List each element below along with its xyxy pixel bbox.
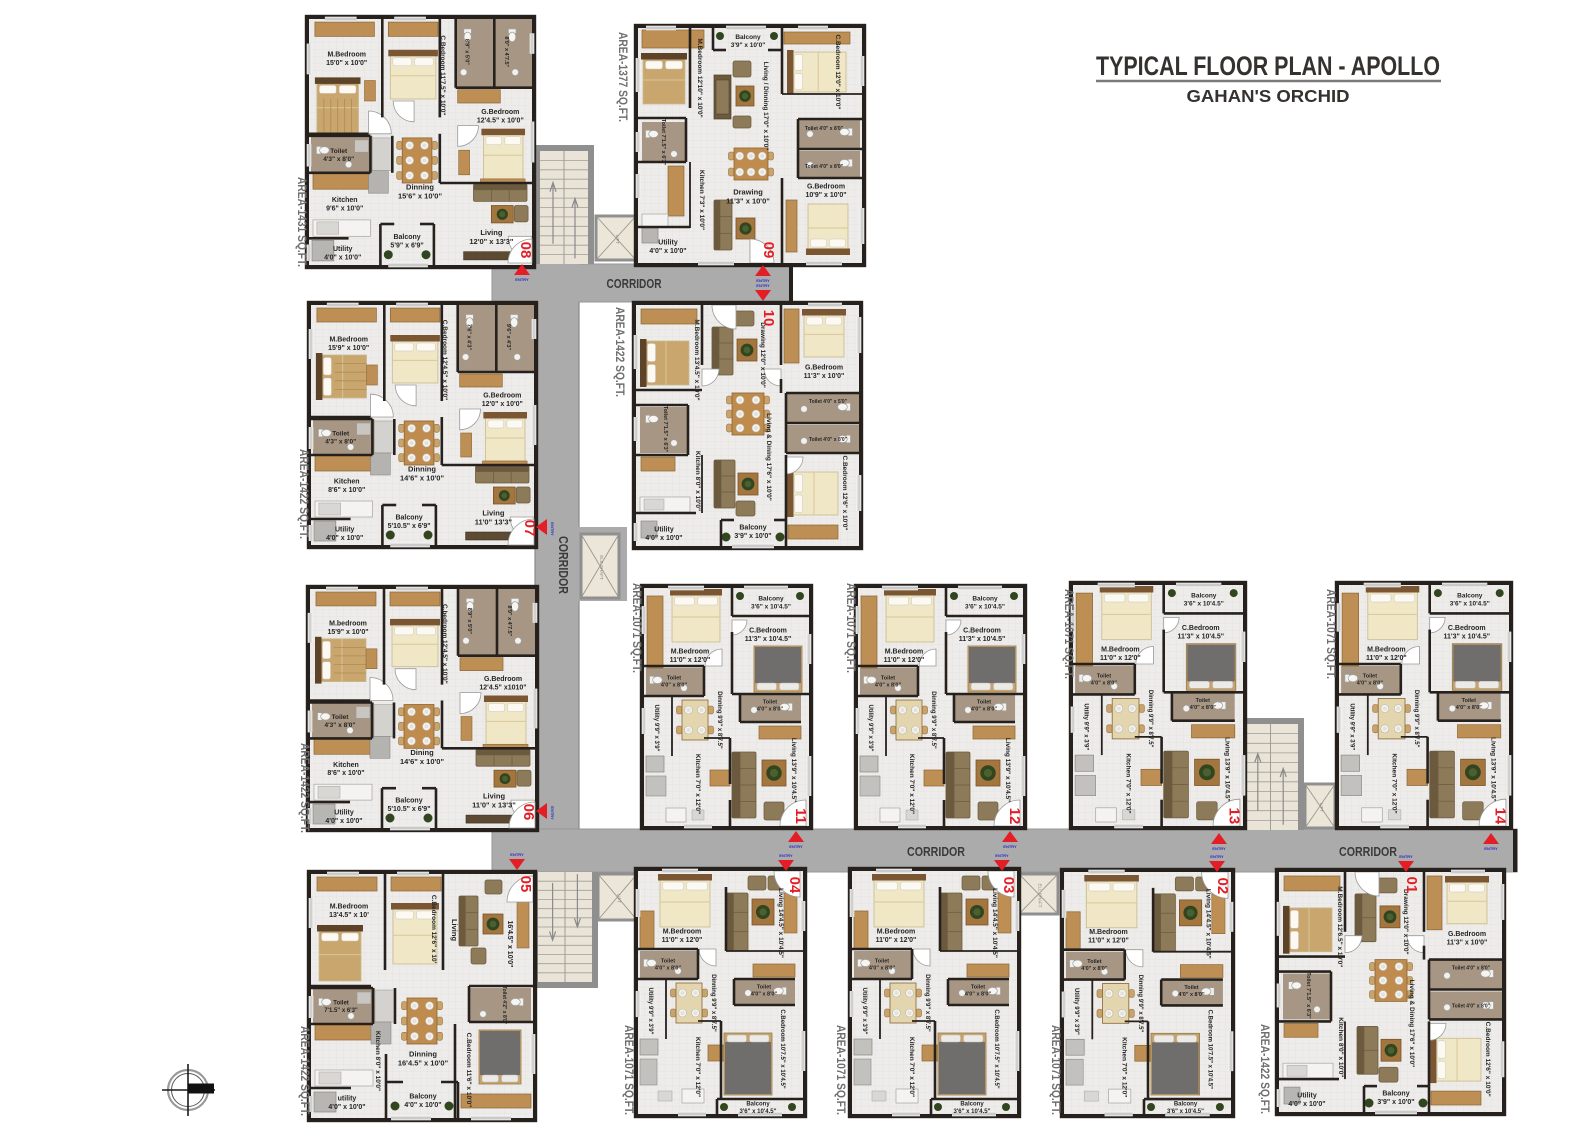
svg-text:4'0" x 10'0": 4'0" x 10'0" [326, 535, 363, 542]
svg-text:Toilet 7'1.5" x 6'3": Toilet 7'1.5" x 6'3" [662, 406, 668, 453]
svg-text:Toilet: Toilet [330, 148, 348, 155]
svg-text:Kitchen 8'0" x 10'0": Kitchen 8'0" x 10'0" [1337, 1017, 1344, 1077]
svg-text:Living 13'9" x 10'4.5": Living 13'9" x 10'4.5" [1490, 737, 1497, 802]
svg-text:Drawing: Drawing [733, 188, 763, 197]
svg-text:3'6" x 10'4.5": 3'6" x 10'4.5" [954, 1109, 991, 1115]
svg-text:4'0" x 10'0": 4'0" x 10'0" [328, 1104, 365, 1111]
svg-text:GAHAN'S ORCHID: GAHAN'S ORCHID [1187, 86, 1350, 106]
svg-text:AREA-1422 SQ.FT.: AREA-1422 SQ.FT. [613, 307, 625, 397]
svg-text:Kitchen 7'0" x 12'0": Kitchen 7'0" x 12'0" [908, 1037, 915, 1097]
svg-text:4'0" x 8'0": 4'0" x 8'0" [1357, 681, 1384, 687]
svg-text:12: 12 [1006, 808, 1023, 825]
svg-text:5'10.5" x 6'9": 5'10.5" x 6'9" [388, 523, 431, 530]
svg-text:AREA-1071 SQ.FT.: AREA-1071 SQ.FT. [1062, 589, 1074, 679]
svg-text:11'0" x 12'0": 11'0" x 12'0" [876, 937, 917, 944]
svg-text:Balcony: Balcony [746, 1102, 770, 1108]
svg-text:05: 05 [517, 876, 534, 893]
svg-text:3'9" x 10'0": 3'9" x 10'0" [1377, 1099, 1414, 1106]
svg-text:Balcony: Balcony [1457, 593, 1483, 600]
svg-text:4'3" x 8'0": 4'3" x 8'0" [325, 722, 356, 729]
svg-text:12'4.5" x 10'0": 12'4.5" x 10'0" [477, 117, 524, 124]
svg-text:06: 06 [520, 804, 537, 821]
svg-text:Dinning 9'9" x 8'7.5": Dinning 9'9" x 8'7.5" [716, 691, 722, 749]
svg-text:Utility: Utility [1297, 1093, 1317, 1100]
svg-text:ENTRY: ENTRY [1210, 854, 1224, 859]
svg-text:AREA-1071 SQ.FT.: AREA-1071 SQ.FT. [834, 1025, 846, 1115]
svg-text:M.Bedroom: M.Bedroom [327, 51, 366, 58]
svg-text:LIFT: LIFT [1319, 803, 1324, 813]
svg-text:Living 14'4.5" x 10'4.5": Living 14'4.5" x 10'4.5" [991, 888, 998, 958]
svg-text:LIFT: LIFT [615, 235, 620, 245]
svg-text:Balcony: Balcony [1191, 593, 1217, 600]
svg-text:Toilet 7'1.5" x 6'3": Toilet 7'1.5" x 6'3" [660, 119, 666, 166]
svg-text:C.Bedroom 12'6" x 10'0": C.Bedroom 12'6" x 10'0" [841, 455, 848, 530]
svg-text:7'1.5" x 6'3": 7'1.5" x 6'3" [324, 1008, 358, 1014]
svg-text:C.Bedroom 12'0" x 10'0": C.Bedroom 12'0" x 10'0" [834, 34, 841, 109]
svg-text:G.Bedroom: G.Bedroom [1448, 931, 1486, 938]
svg-text:CORRIDOR: CORRIDOR [907, 845, 965, 859]
svg-text:Toilet: Toilet [333, 1001, 349, 1007]
svg-text:Toilet 4'0" x 5'0": Toilet 4'0" x 5'0" [809, 399, 848, 405]
svg-text:11'0" x 12'0": 11'0" x 12'0" [1088, 938, 1129, 945]
svg-text:15'6" x 10'0": 15'6" x 10'0" [398, 192, 442, 201]
svg-text:ENTRY: ENTRY [789, 844, 803, 849]
svg-text:ENTRY: ENTRY [515, 277, 529, 282]
svg-text:8'0" x 4'7.5": 8'0" x 4'7.5" [503, 36, 509, 67]
svg-text:CORRIDOR: CORRIDOR [556, 536, 570, 594]
svg-text:Kitchen 8'0" x 10'0": Kitchen 8'0" x 10'0" [694, 451, 701, 511]
svg-text:02: 02 [1214, 878, 1231, 895]
svg-text:C.Bedroom 11'7.5" x 10'0": C.Bedroom 11'7.5" x 10'0" [439, 35, 446, 115]
svg-text:AREA-1071 SQ.FT.: AREA-1071 SQ.FT. [622, 1025, 634, 1115]
svg-text:04: 04 [786, 877, 803, 894]
svg-text:4'0" x 8'0": 4'0" x 8'0" [869, 966, 896, 972]
svg-text:Drawing 12'0" x 10'0": Drawing 12'0" x 10'0" [1402, 889, 1409, 955]
svg-text:Living 13'9" x 10'4.5": Living 13'9" x 10'4.5" [1224, 737, 1231, 802]
svg-text:09: 09 [760, 242, 777, 259]
svg-text:Utility 9'9" x 3'9": Utility 9'9" x 3'9" [1073, 988, 1079, 1035]
svg-text:11'0" x 13'3": 11'0" x 13'3" [472, 801, 516, 810]
svg-text:ENTRY: ENTRY [779, 853, 793, 858]
svg-text:AREA-1431 SQ.FT.: AREA-1431 SQ.FT. [295, 177, 307, 267]
svg-text:12'4.5" x1010": 12'4.5" x1010" [479, 685, 526, 692]
svg-text:4'0" x 8'0": 4'0" x 8'0" [875, 683, 902, 689]
svg-text:C.Bedroom: C.Bedroom [963, 628, 1001, 635]
svg-text:Dinning 9'9" x 8'7.5": Dinning 9'9" x 8'7.5" [1137, 975, 1143, 1033]
svg-text:4'3" x 8'0": 4'3" x 8'0" [325, 439, 356, 446]
svg-text:Kitchen 7'0" x 12'0": Kitchen 7'0" x 12'0" [1125, 753, 1132, 813]
svg-text:Dinning 9'9" x 8'7.5": Dinning 9'9" x 8'7.5" [1413, 690, 1419, 748]
svg-text:Living 13'9" x 10'4.5": Living 13'9" x 10'4.5" [1004, 738, 1011, 803]
svg-text:12'0" x 10'0": 12'0" x 10'0" [482, 401, 523, 408]
svg-text:Utility 9'9" x 3'9": Utility 9'9" x 3'9" [1082, 703, 1088, 750]
svg-text:Toilet 4'0" x 8'0": Toilet 4'0" x 8'0" [805, 126, 844, 132]
svg-text:Balcony: Balcony [393, 234, 420, 241]
svg-text:Kitchen: Kitchen [334, 479, 360, 486]
svg-text:9'6" x 10'0": 9'6" x 10'0" [326, 206, 363, 213]
svg-text:Living: Living [482, 509, 505, 518]
svg-text:3'6" x 10'4.5": 3'6" x 10'4.5" [1184, 601, 1224, 608]
svg-text:10: 10 [760, 310, 777, 327]
svg-text:AREA-1422 SQ.FT.: AREA-1422 SQ.FT. [297, 449, 309, 539]
svg-text:Living / Dinning 17'0" x 10'0": Living / Dinning 17'0" x 10'0" [762, 62, 769, 151]
svg-text:11: 11 [792, 808, 809, 824]
svg-text:Living 13'9" x 10'4.5": Living 13'9" x 10'4.5" [790, 738, 797, 803]
svg-text:M.Bedroom 13'4.5" x 10'0": M.Bedroom 13'4.5" x 10'0" [693, 319, 700, 400]
svg-text:ENTRY: ENTRY [1399, 854, 1413, 859]
svg-text:Balcony: Balcony [1174, 1102, 1198, 1108]
svg-text:Dinning: Dinning [409, 1050, 437, 1059]
svg-text:Drawing 12'0" x 10'0": Drawing 12'0" x 10'0" [759, 322, 766, 388]
svg-text:LIFT: LIFT [617, 894, 622, 904]
svg-text:11'0" x 12'0": 11'0" x 12'0" [884, 657, 925, 664]
svg-text:Toilet: Toilet [763, 700, 777, 706]
svg-text:5'9" x 6'9": 5'9" x 6'9" [390, 242, 423, 249]
svg-text:M.Bedroom: M.Bedroom [330, 904, 369, 911]
svg-text:Toilet 4'0" x 8'0": Toilet 4'0" x 8'0" [1452, 1003, 1491, 1009]
svg-text:11'0" x 12'0": 11'0" x 12'0" [1366, 655, 1407, 662]
svg-text:Living: Living [450, 919, 459, 942]
svg-text:Dinning 9'9" x 8'7.5": Dinning 9'9" x 8'7.5" [924, 974, 930, 1032]
svg-text:Toilet: Toilet [757, 985, 771, 991]
svg-text:8'6" x 10'0": 8'6" x 10'0" [328, 487, 365, 494]
svg-text:Balcony: Balcony [739, 525, 766, 532]
svg-text:3'6" x 10'4.5": 3'6" x 10'4.5" [751, 604, 791, 611]
svg-text:16'4.5" x 10'0": 16'4.5" x 10'0" [506, 921, 513, 968]
svg-text:11'3" x 10'4.5": 11'3" x 10'4.5" [1444, 634, 1491, 641]
svg-text:Toilet: Toilet [1462, 698, 1476, 704]
svg-text:AREA-1377 SQ.FT.: AREA-1377 SQ.FT. [616, 32, 628, 122]
svg-text:4'0" x 8'0": 4'0" x 8'0" [1190, 705, 1217, 711]
svg-text:Toilet: Toilet [1184, 985, 1198, 991]
svg-text:Kitchen 7'0" x 12'0": Kitchen 7'0" x 12'0" [694, 754, 701, 814]
svg-text:3'9" x 10'0": 3'9" x 10'0" [731, 42, 766, 49]
svg-text:G.Bedroom: G.Bedroom [483, 393, 521, 400]
svg-text:10'9" x 10'0": 10'9" x 10'0" [805, 192, 846, 199]
svg-text:Living & Dining 17'6" x 10'0": Living & Dining 17'6" x 10'0" [765, 413, 772, 501]
svg-text:07: 07 [521, 520, 538, 537]
svg-text:CORRIDOR: CORRIDOR [607, 277, 662, 291]
svg-text:Balcony: Balcony [1382, 1091, 1409, 1098]
svg-text:Dining: Dining [410, 748, 434, 757]
svg-text:11'3" x 10'4.5": 11'3" x 10'4.5" [959, 636, 1006, 643]
svg-text:8'6" x 10'0": 8'6" x 10'0" [327, 770, 364, 777]
svg-text:M.Bedroom: M.Bedroom [329, 337, 368, 344]
svg-text:AREA-1071 SQ.FT.: AREA-1071 SQ.FT. [844, 583, 856, 673]
svg-text:11'0" x 12'0": 11'0" x 12'0" [670, 657, 711, 664]
svg-text:Balcony: Balcony [960, 1102, 984, 1108]
svg-text:Dinning 9'9" x 8'7.5": Dinning 9'9" x 8'7.5" [930, 691, 936, 749]
svg-text:Toilet: Toilet [667, 676, 681, 682]
svg-text:Toilet 7'1.5" x 6'3": Toilet 7'1.5" x 6'3" [1305, 972, 1311, 1019]
svg-text:3'6" x 10'4.5": 3'6" x 10'4.5" [1167, 1109, 1204, 1115]
svg-text:Utility 9'9" x 3'9": Utility 9'9" x 3'9" [647, 988, 653, 1035]
svg-text:Utility: Utility [658, 240, 678, 247]
svg-text:C.Bedroom 10'7.5" x 10'4.5": C.Bedroom 10'7.5" x 10'4.5" [779, 1009, 785, 1088]
svg-text:11'0" x 12'0": 11'0" x 12'0" [662, 937, 703, 944]
svg-text:Utility 9'9" x 3'9": Utility 9'9" x 3'9" [861, 988, 867, 1035]
svg-text:G.Bedroom: G.Bedroom [807, 184, 845, 191]
svg-text:G.Bedroom: G.Bedroom [481, 109, 519, 116]
svg-text:Utility 9'9" x 3'9": Utility 9'9" x 3'9" [653, 705, 659, 752]
svg-text:Toilet: Toilet [881, 676, 895, 682]
svg-text:G.Bedroom: G.Bedroom [805, 365, 843, 372]
svg-text:ENTRY: ENTRY [1212, 846, 1226, 851]
svg-text:03: 03 [1000, 877, 1017, 894]
svg-text:14'6" x 10'0": 14'6" x 10'0" [400, 474, 444, 483]
svg-text:Utility: Utility [654, 527, 674, 534]
svg-text:4'0" x 8'0": 4'0" x 8'0" [971, 707, 998, 713]
svg-text:M.Bedroom: M.Bedroom [663, 929, 702, 936]
svg-text:4'0" x 10'0": 4'0" x 10'0" [1288, 1101, 1325, 1108]
svg-text:ENTRY: ENTRY [756, 283, 770, 288]
svg-text:Kitchen 7'0" x 12'0": Kitchen 7'0" x 12'0" [1391, 753, 1398, 813]
svg-text:15'0" x 10'0": 15'0" x 10'0" [326, 60, 367, 67]
svg-text:Living: Living [483, 792, 506, 801]
svg-text:Utility: Utility [335, 527, 355, 534]
svg-text:ENTRY: ENTRY [510, 852, 524, 857]
svg-text:14: 14 [1492, 808, 1509, 825]
svg-text:Kitchen 7'0" x 12'0": Kitchen 7'0" x 12'0" [1121, 1037, 1128, 1097]
svg-text:Living & Dining 17'6" x 10'0": Living & Dining 17'6" x 10'0" [1408, 980, 1415, 1068]
svg-text:AREA-1071 SQ.FT.: AREA-1071 SQ.FT. [1324, 589, 1336, 679]
svg-text:TYPICAL FLOOR PLAN - APOLLO: TYPICAL FLOOR PLAN - APOLLO [1096, 51, 1440, 81]
svg-text:5'10.5" x 6'9": 5'10.5" x 6'9" [387, 806, 430, 813]
svg-text:ELE.SHAFT: ELE.SHAFT [599, 555, 604, 580]
svg-text:CORRIDOR: CORRIDOR [1339, 845, 1397, 859]
svg-text:Toilet 4'0" x 8'0": Toilet 4'0" x 8'0" [1452, 966, 1491, 972]
svg-text:C.Bedroom 12'6" x 10': C.Bedroom 12'6" x 10' [430, 895, 437, 964]
svg-text:ENTRY: ENTRY [1484, 846, 1498, 851]
svg-text:Dinning: Dinning [408, 465, 436, 474]
svg-text:Dinning 9'9" x 8'7.5": Dinning 9'9" x 8'7.5" [1147, 690, 1153, 748]
svg-text:Living 14'4.5" x 10'4.5": Living 14'4.5" x 10'4.5" [777, 888, 784, 958]
svg-text:Living 14'4.5" x 10'4.5": Living 14'4.5" x 10'4.5" [1205, 889, 1212, 959]
svg-text:C.Bedroom: C.Bedroom [1448, 625, 1486, 632]
svg-text:M.Bedroom 12'10" x 10'0": M.Bedroom 12'10" x 10'0" [696, 38, 703, 117]
svg-text:Balcony: Balcony [972, 596, 998, 603]
svg-text:3'6" x 10'4.5": 3'6" x 10'4.5" [1450, 601, 1490, 608]
svg-text:ENTRY: ENTRY [550, 806, 555, 820]
svg-text:C.Bedroom 12'4.5" x 10'0": C.Bedroom 12'4.5" x 10'0" [441, 320, 448, 400]
svg-text:Dinning: Dinning [406, 183, 434, 192]
svg-text:M.Bedroom 12'6.5" x 10'0": M.Bedroom 12'6.5" x 10'0" [1336, 886, 1343, 967]
svg-text:01: 01 [1403, 877, 1420, 894]
svg-text:AREA-1071 SQ.FT.: AREA-1071 SQ.FT. [630, 583, 642, 673]
svg-text:Utility: Utility [333, 246, 353, 253]
svg-text:Toilet: Toilet [332, 714, 350, 721]
svg-text:12'0" x 13'3": 12'0" x 13'3" [469, 237, 513, 246]
svg-text:Kitchen: Kitchen [332, 197, 358, 204]
svg-text:Balcony: Balcony [409, 1094, 436, 1101]
svg-text:AREA-1422 SQ.FT.: AREA-1422 SQ.FT. [298, 743, 310, 833]
svg-text:11'0" x 12'0": 11'0" x 12'0" [1100, 655, 1141, 662]
svg-text:C.Bedroom: C.Bedroom [1182, 625, 1220, 632]
svg-text:11'0" 13'3": 11'0" 13'3" [475, 518, 513, 527]
svg-text:4'0" x 8'0": 4'0" x 8'0" [1178, 992, 1205, 998]
svg-text:Kitchen 7'0" x 12'0": Kitchen 7'0" x 12'0" [908, 754, 915, 814]
svg-text:Utility 9'9" x 3'9": Utility 9'9" x 3'9" [867, 705, 873, 752]
svg-text:utility: utility [338, 1096, 357, 1103]
svg-text:M.Bedroom: M.Bedroom [671, 649, 710, 656]
svg-text:Toilet: Toilet [1363, 674, 1377, 680]
svg-text:7'6" x 4'3": 7'6" x 4'3" [466, 324, 472, 351]
svg-text:4'0" x 10'0": 4'0" x 10'0" [645, 535, 682, 542]
svg-text:Toilet 4'2" x 8'0": Toilet 4'2" x 8'0" [501, 986, 507, 1025]
svg-text:M.Bedroom: M.Bedroom [1089, 929, 1128, 936]
svg-text:Kitchen 7'0" x 12'0": Kitchen 7'0" x 12'0" [694, 1037, 701, 1097]
svg-text:M.bedroom: M.bedroom [329, 620, 367, 627]
svg-text:Balcony: Balcony [735, 34, 761, 41]
svg-text:4'0" x 8'0": 4'0" x 8'0" [661, 683, 688, 689]
svg-text:4'3" x 8'0": 4'3" x 8'0" [323, 156, 354, 163]
svg-text:Dinning 9'9" x 8'7.5": Dinning 9'9" x 8'7.5" [710, 974, 716, 1032]
svg-text:Toilet: Toilet [971, 985, 985, 991]
svg-text:8'9" x 5'0": 8'9" x 5'0" [464, 39, 470, 66]
svg-text:9'6" x 4'3": 9'6" x 4'3" [505, 324, 511, 351]
svg-text:4'0" x 10'0": 4'0" x 10'0" [404, 1102, 441, 1109]
svg-text:4'0" x 10'0": 4'0" x 10'0" [324, 255, 361, 262]
svg-text:C.Bedroom: C.Bedroom [749, 628, 787, 635]
svg-text:Balcony: Balcony [395, 798, 422, 805]
svg-text:08: 08 [517, 242, 534, 259]
svg-text:Toilet: Toilet [332, 431, 350, 438]
svg-text:Kitchen 8'0" x 10'0": Kitchen 8'0" x 10'0" [374, 1031, 381, 1091]
svg-text:4'0" x 8'0": 4'0" x 8'0" [757, 707, 784, 713]
svg-text:ENTRY: ENTRY [1003, 844, 1017, 849]
svg-text:M.Bedroom: M.Bedroom [877, 929, 916, 936]
svg-text:C.bedroom 12'4.5" x 10'0": C.bedroom 12'4.5" x 10'0" [441, 604, 448, 684]
svg-text:Toilet 4'0" x 8'0": Toilet 4'0" x 8'0" [805, 164, 844, 170]
svg-text:3'6" x 10'4.5": 3'6" x 10'4.5" [965, 604, 1005, 611]
svg-text:Toilet: Toilet [977, 700, 991, 706]
svg-text:Utility 9'9" x 3'9": Utility 9'9" x 3'9" [1348, 703, 1354, 750]
svg-text:14'6" x 10'0": 14'6" x 10'0" [400, 757, 444, 766]
svg-text:8'9" x 4'7.5": 8'9" x 4'7.5" [506, 606, 512, 637]
svg-text:Balcony: Balcony [395, 515, 422, 522]
svg-text:Balcony: Balcony [758, 596, 784, 603]
svg-text:16'4.5" x 10'0": 16'4.5" x 10'0" [398, 1059, 449, 1068]
svg-text:11'3" x 10'0": 11'3" x 10'0" [1447, 940, 1488, 947]
svg-text:4'0" x 10'0": 4'0" x 10'0" [325, 818, 362, 825]
svg-text:4'0" x 10'0": 4'0" x 10'0" [649, 248, 686, 255]
svg-text:M.Bedroom: M.Bedroom [1367, 646, 1406, 653]
svg-text:M.Bedroom: M.Bedroom [1101, 646, 1140, 653]
svg-text:Toilet: Toilet [1097, 674, 1111, 680]
svg-text:4'0" x 8'0": 4'0" x 8'0" [1456, 705, 1483, 711]
svg-text:ELL.SHAFT: ELL.SHAFT [1038, 883, 1043, 907]
svg-text:C.Bedroom 12'6" x 10'0": C.Bedroom 12'6" x 10'0" [1484, 1022, 1491, 1097]
svg-text:Toilet: Toilet [661, 959, 675, 965]
svg-text:C.Bedroom 10'7.5" x 10'4.5": C.Bedroom 10'7.5" x 10'4.5" [1207, 1010, 1213, 1089]
svg-text:13: 13 [1226, 808, 1243, 825]
svg-text:3'9" x 10'0": 3'9" x 10'0" [734, 533, 771, 540]
svg-text:AREA-1422 SQ.FT.: AREA-1422 SQ.FT. [298, 1026, 310, 1116]
svg-text:Toilet: Toilet [1087, 959, 1101, 965]
svg-text:ENTRY: ENTRY [995, 853, 1009, 858]
svg-text:Living: Living [480, 228, 503, 237]
svg-text:3'6" x 10'4.5": 3'6" x 10'4.5" [740, 1109, 777, 1115]
svg-text:Utility: Utility [334, 810, 354, 817]
svg-text:4'0" x 8'0": 4'0" x 8'0" [1081, 966, 1108, 972]
svg-text:11'3" x 10'4.5": 11'3" x 10'4.5" [1178, 634, 1225, 641]
svg-text:ENTRY: ENTRY [550, 522, 555, 536]
svg-text:4'0" x 8'0": 4'0" x 8'0" [655, 966, 682, 972]
svg-text:4'0" x 8'0": 4'0" x 8'0" [965, 992, 992, 998]
svg-text:M.Bedroom: M.Bedroom [885, 649, 924, 656]
svg-text:4'0" x 8'0": 4'0" x 8'0" [1091, 681, 1118, 687]
svg-text:Toilet 4'0" x 8'0": Toilet 4'0" x 8'0" [809, 437, 848, 443]
svg-text:15'9" x 10'0": 15'9" x 10'0" [327, 629, 368, 636]
svg-text:13'4.5" x 10': 13'4.5" x 10' [329, 912, 369, 919]
svg-text:C.Bedroom 10'7.5" x 10'4.5": C.Bedroom 10'7.5" x 10'4.5" [993, 1009, 999, 1088]
svg-text:15'9" x 10'0": 15'9" x 10'0" [328, 345, 369, 352]
svg-text:C.Bedroom 11'6" x 10'0": C.Bedroom 11'6" x 10'0" [465, 1033, 472, 1108]
svg-text:11'3" x 10'0": 11'3" x 10'0" [726, 197, 770, 206]
svg-text:Kitchen 7'3" x 10'0": Kitchen 7'3" x 10'0" [698, 170, 705, 230]
svg-text:11'3" x 10'0": 11'3" x 10'0" [804, 373, 845, 380]
svg-text:4'0" x 8'0": 4'0" x 8'0" [751, 992, 778, 998]
svg-text:Toilet: Toilet [875, 959, 889, 965]
svg-text:AREA-1422 SQ.FT.: AREA-1422 SQ.FT. [1258, 1024, 1270, 1114]
svg-text:11'3" x 10'4.5": 11'3" x 10'4.5" [745, 636, 792, 643]
svg-text:Toilet: Toilet [1196, 698, 1210, 704]
svg-text:G.Bedroom: G.Bedroom [484, 676, 522, 683]
svg-text:8'9" x 5'0": 8'9" x 5'0" [466, 608, 472, 635]
svg-text:Kitchen: Kitchen [333, 762, 359, 769]
svg-text:AREA-1071 SQ.FT.: AREA-1071 SQ.FT. [1049, 1025, 1061, 1115]
